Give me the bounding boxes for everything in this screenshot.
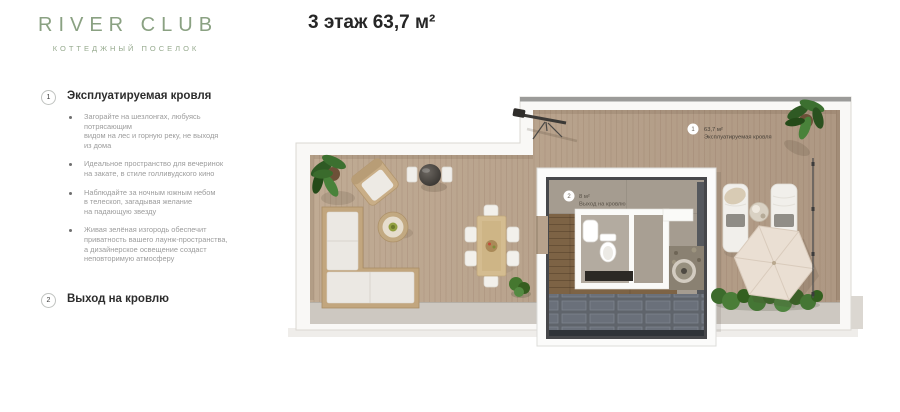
svg-text:8 м²: 8 м² [579, 194, 590, 200]
legend-number-1: 1 [41, 90, 56, 105]
legend-body-2: Выход на кровлю [67, 293, 169, 306]
bullet-dot [69, 116, 72, 119]
floor-plan-svg: 1 63,7 м² Эксплуатируемая кровля 2 8 м² … [280, 85, 870, 355]
bullet-text: Живая зелёная изгородь обеспечит приватн… [84, 225, 228, 263]
brand-name: RIVER CLUB [38, 14, 214, 37]
legend-bullets: Загорайте на шезлонгах, любуясь потрясаю… [67, 112, 228, 264]
svg-text:Выход на кровлю: Выход на кровлю [579, 202, 626, 208]
bullet-dot [69, 163, 72, 166]
bullet-text: Идеальное пространство для вечеринок на … [84, 159, 223, 178]
legend-body-1: Эксплуатируемая кровля Загорайте на шезл… [67, 90, 228, 273]
svg-text:63,7 м²: 63,7 м² [704, 127, 723, 133]
brand-logo: RIVER CLUB КОТТЕДЖНЫЙ ПОСЕЛОК [38, 14, 214, 53]
bullet-dot [69, 192, 72, 195]
legend-bullet: Загорайте на шезлонгах, любуясь потрясаю… [67, 112, 228, 150]
page-title: 3 этаж 63,7 м² [308, 12, 435, 34]
legend-bullet: Идеальное пространство для вечеринок на … [67, 159, 228, 178]
wall-basin [583, 220, 598, 242]
legend: 1 Эксплуатируемая кровля Загорайте на ше… [41, 90, 265, 308]
bullet-text: Наблюдайте за ночным южным небом в телес… [84, 188, 215, 217]
legend-number-2: 2 [41, 293, 56, 308]
legend-bullet: Живая зелёная изгородь обеспечит приватн… [67, 225, 228, 263]
brand-tagline: КОТТЕДЖНЫЙ ПОСЕЛОК [38, 44, 214, 53]
side-table [750, 203, 769, 222]
legend-item-exit: 2 Выход на кровлю [41, 293, 265, 308]
svg-text:Эксплуатируемая кровля: Эксплуатируемая кровля [704, 135, 772, 141]
page: RIVER CLUB КОТТЕДЖНЫЙ ПОСЕЛОК 3 этаж 63,… [0, 0, 900, 412]
legend-item-roof: 1 Эксплуатируемая кровля Загорайте на ше… [41, 90, 265, 273]
bullet-dot [69, 229, 72, 232]
floor-plan: 1 63,7 м² Эксплуатируемая кровля 2 8 м² … [280, 85, 870, 355]
legend-title-1: Эксплуатируемая кровля [67, 90, 228, 103]
legend-bullet: Наблюдайте за ночным южным небом в телес… [67, 188, 228, 217]
legend-title-2: Выход на кровлю [67, 293, 169, 306]
bullet-text: Загорайте на шезлонгах, любуясь потрясаю… [84, 112, 218, 150]
